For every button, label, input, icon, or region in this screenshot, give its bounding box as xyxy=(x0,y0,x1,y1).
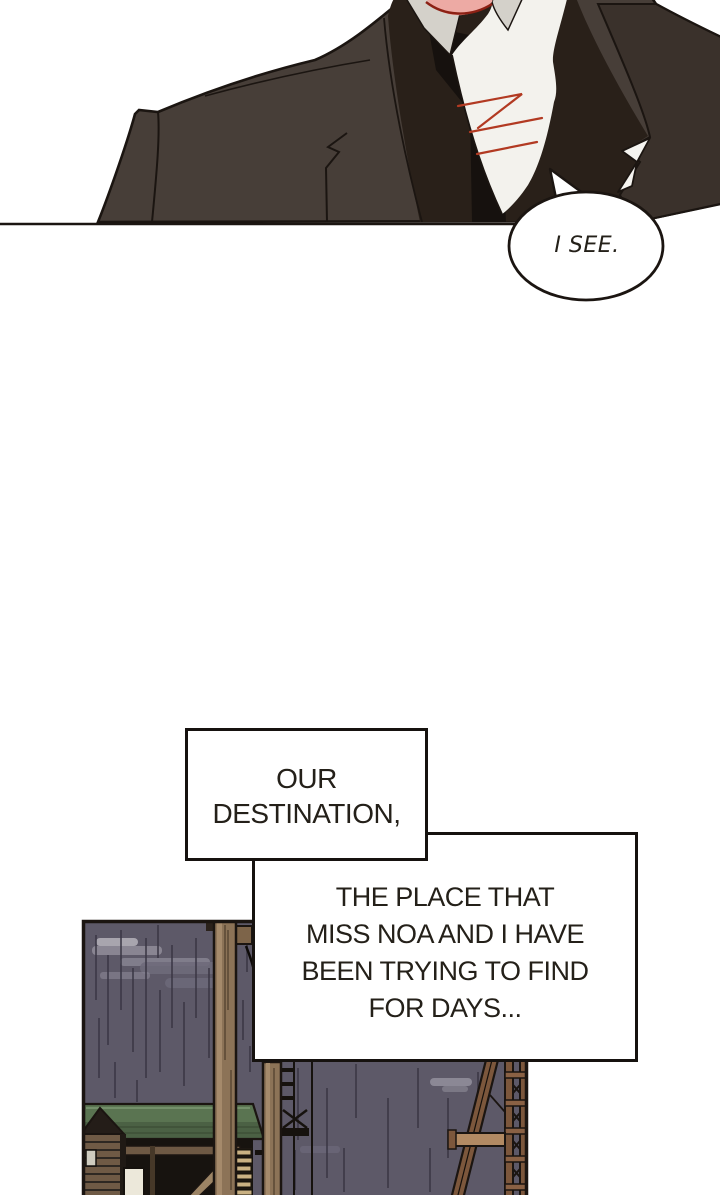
narration-box-2: THE PLACE THAT MISS NOA AND I HAVE BEEN … xyxy=(252,832,638,1062)
lit-window xyxy=(124,1168,144,1195)
narration-line: THE PLACE THAT xyxy=(255,879,635,916)
narration-line: OUR xyxy=(188,761,425,796)
narration-line: FOR DAYS... xyxy=(255,990,635,1027)
comic-page: I SEE. xyxy=(0,0,720,1195)
speech-bubble-text: I SEE. xyxy=(512,232,662,260)
narration-line: BEEN TRYING TO FIND xyxy=(255,953,635,990)
tower-beam xyxy=(453,1133,505,1146)
suit-character-panel xyxy=(0,0,720,312)
dim-window xyxy=(86,1150,96,1166)
pole-crossarm xyxy=(236,926,252,944)
narration-line: DESTINATION, xyxy=(188,796,425,831)
narration-box-1: OUR DESTINATION, xyxy=(185,728,428,861)
narration-line: MISS NOA AND I HAVE xyxy=(255,916,635,953)
